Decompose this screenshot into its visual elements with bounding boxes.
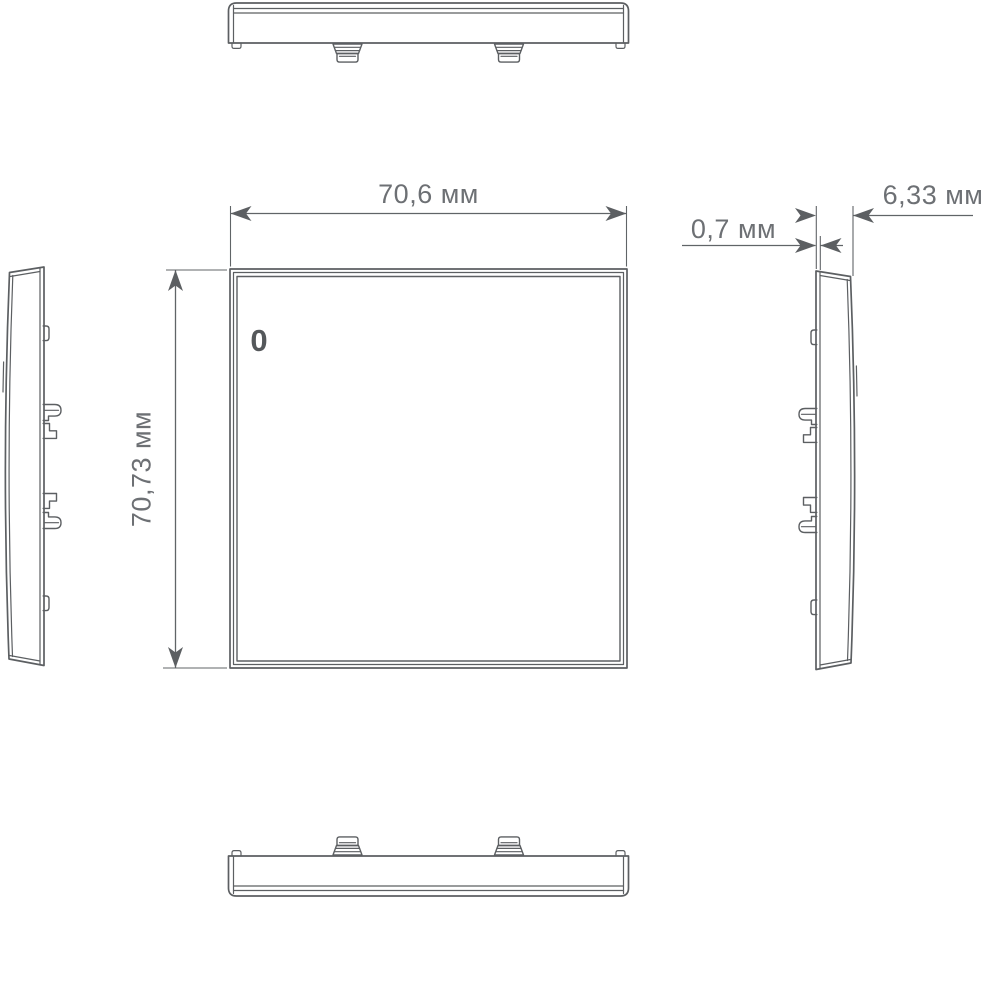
clip-ribbed-taper [333, 44, 362, 54]
technical-drawing-canvas: 0 70,6 мм 70,73 мм 0,7 мм 6,33 мм [0, 0, 1000, 998]
clip-latch-box [337, 54, 358, 63]
snap-clip [495, 44, 524, 62]
side-view-curve-mark [3, 362, 4, 392]
left-side-view [3, 267, 61, 666]
thickness-dimension: 0,7 мм [682, 206, 843, 270]
depth-dimension-label: 6,33 мм [883, 180, 984, 210]
side-view-hook-prong-lower [43, 513, 61, 529]
height-dimension-label: 70,73 мм [127, 411, 157, 527]
depth-dimension: 6,33 мм [795, 180, 983, 276]
front-view: 0 [230, 269, 627, 668]
depth-arrow-outer-left [795, 208, 816, 223]
front-view-inner-face [237, 277, 620, 662]
thickness-dimension-label: 0,7 мм [691, 214, 776, 244]
snap-clip [333, 44, 362, 62]
front-view-outer-frame [230, 269, 627, 668]
width-dimension: 70,6 мм [231, 179, 627, 267]
drawing-svg: 0 70,6 мм 70,73 мм 0,7 мм 6,33 мм [0, 0, 1000, 998]
side-view-inner-back-curve [9, 276, 13, 657]
top-view [229, 3, 629, 62]
bottom-view [229, 837, 629, 896]
front-view-mid-frame [234, 273, 624, 665]
side-view-step-foot-upper [43, 424, 56, 439]
side-view-hook-prong-upper [43, 405, 61, 421]
height-dimension: 70,73 мм [127, 270, 228, 668]
indicator-mark: 0 [250, 323, 267, 358]
right-side-view [799, 271, 857, 670]
width-dimension-label: 70,6 мм [378, 179, 479, 209]
side-view-step-foot-lower [43, 494, 56, 509]
